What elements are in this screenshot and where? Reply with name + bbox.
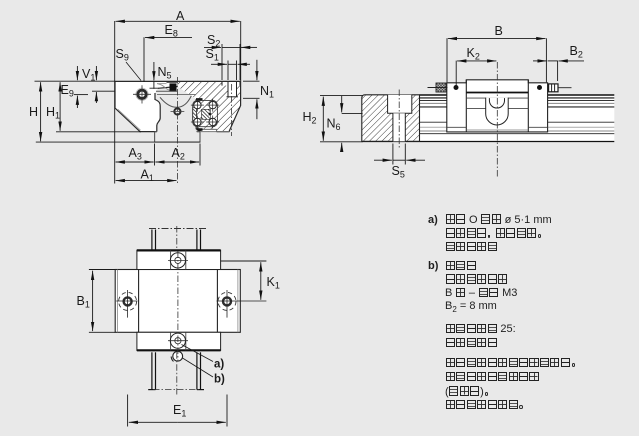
svg-text:B: B [495,24,503,38]
svg-text:B1: B1 [77,294,90,310]
svg-text:B2: B2 [570,44,583,60]
svg-text:H: H [29,105,38,119]
svg-text:A3: A3 [129,146,142,162]
svg-text:K2: K2 [467,46,480,62]
svg-text:E1: E1 [173,403,186,419]
svg-text:N5: N5 [158,65,172,81]
svg-text:E9: E9 [61,83,74,99]
svg-text:a): a) [214,359,224,371]
svg-text:N6: N6 [327,117,341,133]
svg-text:S1: S1 [206,47,219,63]
svg-text:A: A [176,9,185,23]
svg-text:A1: A1 [141,168,154,184]
svg-text:H1: H1 [46,105,60,121]
svg-text:A2: A2 [172,146,185,162]
svg-text:K1: K1 [267,275,280,291]
svg-text:V1: V1 [82,67,95,83]
svg-text:E8: E8 [165,23,178,39]
svg-text:S5: S5 [392,164,405,180]
svg-text:H2: H2 [303,110,317,126]
svg-text:N1: N1 [260,84,274,100]
svg-text:S9: S9 [116,47,129,63]
svg-text:b): b) [214,374,225,386]
